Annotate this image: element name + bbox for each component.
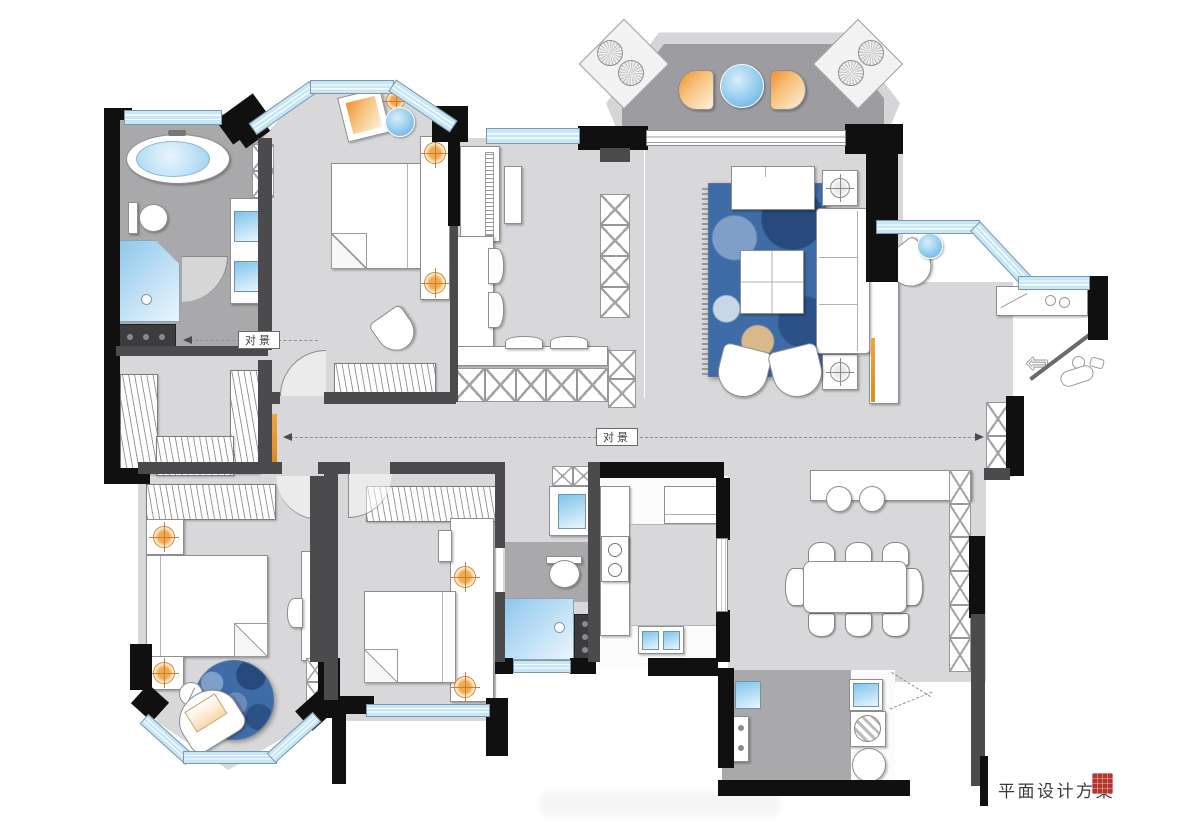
sightline-dash	[290, 437, 596, 438]
wall	[969, 536, 985, 618]
window	[366, 704, 490, 717]
cabinet-step-line	[765, 167, 766, 177]
sink-basin	[663, 631, 680, 650]
folding-door-line	[889, 691, 932, 709]
burner-icon	[608, 563, 622, 577]
partition	[588, 462, 600, 662]
floor-plan-canvas: ⇦	[0, 0, 1200, 833]
partition	[984, 468, 1010, 480]
red-seal-stamp	[1092, 773, 1113, 794]
cabinet-cell	[454, 368, 485, 402]
shower-head-icon	[141, 294, 152, 305]
partition	[324, 462, 338, 700]
kitchen-sink	[638, 626, 684, 654]
coffee-table	[740, 250, 804, 314]
corner-window-segment	[1018, 276, 1090, 290]
wall	[592, 462, 724, 478]
desk-chair	[488, 248, 504, 284]
laundry-tub	[852, 748, 886, 782]
bathtub-basin	[136, 141, 210, 177]
plant-icon	[597, 40, 623, 66]
partition	[495, 462, 505, 548]
cabinet-cell	[949, 605, 971, 639]
nightstand-lamp-icon	[153, 662, 175, 684]
sightline-arrow-left	[283, 433, 292, 441]
nightstand-lamp-icon	[454, 566, 476, 588]
partition	[495, 592, 505, 662]
bed-pillow-line	[442, 592, 443, 682]
bed-fold-corner	[331, 233, 367, 269]
toilet-tank	[128, 202, 138, 234]
sightline-dash	[278, 340, 318, 341]
wall	[578, 126, 648, 150]
wall	[718, 668, 734, 768]
desk-shelf	[438, 530, 452, 562]
desk-chair	[287, 598, 303, 628]
sink-basin	[853, 683, 879, 707]
window	[513, 660, 571, 673]
cabinet-cell	[949, 571, 971, 605]
bed-pillow-line	[160, 556, 161, 656]
wall	[648, 658, 718, 676]
sightline-arrow-left	[183, 336, 192, 344]
sink-basin	[558, 494, 586, 529]
nightstand-lamp-icon	[454, 676, 476, 698]
person-body	[1058, 363, 1095, 389]
corner-round-table	[917, 233, 943, 259]
counter-diagonal	[1001, 293, 1028, 308]
nightstand-lamp-icon	[424, 272, 446, 294]
cabinet-cell	[552, 466, 573, 486]
partition	[324, 392, 456, 404]
title-divider-bar	[980, 756, 988, 806]
console-accent-strip	[871, 338, 875, 402]
knob-dot	[143, 334, 149, 340]
shelf-cell	[600, 256, 630, 287]
utility-sink	[735, 681, 761, 709]
dining-chair	[845, 613, 872, 637]
desk-chair	[488, 292, 504, 328]
sink-basin	[234, 211, 260, 242]
entry-counter	[996, 286, 1088, 316]
bathtub-faucet	[168, 130, 186, 136]
dining-chair	[785, 568, 804, 606]
wall	[1006, 396, 1024, 476]
sofa-cushion-line	[819, 304, 857, 305]
bay-window-segment	[310, 80, 394, 94]
burner-icon	[608, 543, 622, 557]
partition	[262, 392, 280, 404]
cabinet-cell	[608, 379, 636, 408]
cabinet-cell	[949, 470, 971, 504]
balcony-chair-left	[678, 70, 714, 110]
washer-drum-icon	[854, 715, 881, 742]
wall	[718, 780, 910, 796]
cabinet-cell	[608, 350, 636, 379]
sightline-label: 对景	[238, 331, 280, 349]
partition	[450, 226, 458, 402]
dining-table	[803, 561, 907, 613]
cabinet-cell	[485, 368, 516, 402]
partition	[336, 462, 350, 474]
washing-machine	[850, 711, 886, 747]
study-storage-block	[608, 350, 636, 408]
sightline-dash	[190, 340, 240, 341]
plant-icon	[838, 60, 864, 86]
corner-window-segment	[876, 220, 980, 234]
sink-basin	[642, 631, 659, 650]
knob-dot	[127, 334, 133, 340]
plant-icon	[858, 40, 884, 66]
refrigerator	[664, 486, 720, 524]
sofa-cushion-line	[819, 257, 857, 258]
study-storage-row	[454, 368, 608, 402]
desk-chair	[505, 336, 543, 349]
cabinet-cell	[516, 368, 547, 402]
drawing-title: 平面设计方案	[998, 777, 1158, 801]
person-figure-icon	[1054, 344, 1106, 392]
decor-circle	[1045, 295, 1056, 306]
cabinet-cell	[949, 638, 971, 672]
plant-icon	[618, 60, 644, 86]
nightstand-lamp-icon	[424, 142, 446, 164]
partition	[138, 462, 282, 474]
sofa-side-table	[822, 170, 858, 206]
bedroom2-desk	[450, 518, 494, 702]
bay-window-segment	[183, 751, 277, 764]
balcony-sliding-door	[646, 130, 846, 146]
piano-keys	[485, 152, 494, 236]
wall	[600, 148, 630, 162]
desk-horizontal	[454, 346, 608, 366]
toilet-bowl	[139, 204, 168, 232]
side-table-round	[385, 107, 415, 137]
bookshelf	[600, 194, 630, 318]
sink-basin	[234, 261, 260, 292]
nightstand-lamp-icon	[153, 526, 175, 548]
partition	[390, 462, 498, 474]
bed-pillow-line	[407, 164, 408, 268]
piano-bench	[504, 166, 522, 224]
wall	[716, 478, 730, 540]
cooktop	[601, 536, 629, 582]
toilet-bowl	[549, 560, 580, 588]
sofa	[816, 208, 870, 354]
knob-dot	[738, 745, 744, 751]
shelf-cell	[600, 194, 630, 225]
sofa-side-table	[822, 354, 858, 390]
window	[124, 110, 222, 125]
shelf-cell	[600, 287, 630, 318]
sightline-label: 对景	[596, 428, 638, 446]
kitchen-sliding-door	[716, 538, 728, 612]
piano	[460, 146, 500, 242]
chair-cushion	[184, 693, 227, 732]
chair-cushion	[346, 96, 383, 134]
desk-chair	[550, 336, 588, 349]
cabinet-cell	[949, 537, 971, 571]
table-lamp-icon	[830, 178, 850, 198]
tv-cabinet	[731, 166, 815, 210]
sightline-dash	[640, 437, 976, 438]
master-bed	[331, 163, 423, 269]
window	[486, 128, 580, 144]
decor-circle	[1059, 297, 1070, 308]
wall	[448, 116, 460, 226]
bedroom2-bed	[364, 591, 456, 683]
cabinet-cell	[577, 368, 608, 402]
bed-fold-corner	[364, 649, 398, 683]
wall	[716, 610, 730, 662]
shower-head-icon	[554, 622, 565, 633]
bar-stool	[859, 486, 885, 512]
sightline-arrow-right	[975, 433, 984, 441]
partition	[258, 138, 272, 350]
laundry-sink	[849, 679, 883, 711]
bath-cabinet	[116, 324, 176, 348]
dining-chair	[882, 613, 909, 637]
kitchen-island-block	[630, 524, 718, 626]
bedroom3-bed	[146, 555, 268, 657]
fridge-divider	[665, 514, 719, 515]
wall	[1088, 276, 1108, 340]
bed-fold-corner	[234, 623, 268, 657]
cabinet-cell	[949, 504, 971, 538]
dining-chair	[808, 613, 835, 637]
closet-wardrobe-left	[120, 374, 158, 474]
wall	[332, 712, 346, 784]
knob-dot	[738, 725, 744, 731]
partition	[310, 476, 324, 662]
balcony-chair-right	[770, 70, 806, 110]
wall	[866, 148, 898, 282]
dining-storage-cabinet	[949, 470, 971, 672]
knob-dot	[159, 334, 165, 340]
balcony-round-table	[720, 64, 764, 108]
bedroom3-wardrobe	[146, 484, 276, 520]
wall	[104, 108, 120, 480]
bar-stool	[826, 486, 852, 512]
closet-wardrobe-right	[230, 370, 260, 474]
partition	[258, 360, 272, 472]
wall	[130, 644, 152, 690]
shelf-cell	[600, 225, 630, 256]
closet-accent-strip	[272, 414, 277, 462]
sofa-back-line	[857, 211, 858, 351]
cabinet-cell	[546, 368, 577, 402]
table-lamp-icon	[830, 362, 850, 382]
partition	[318, 462, 328, 474]
